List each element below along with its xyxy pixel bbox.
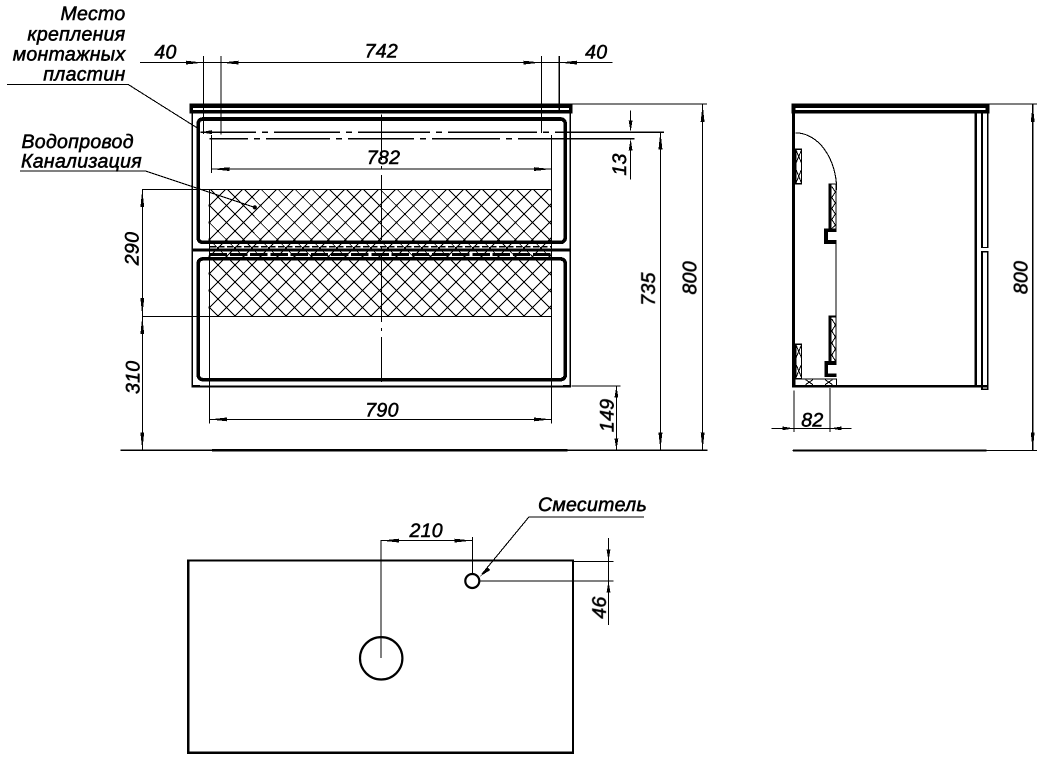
svg-text:Место: Место xyxy=(61,3,126,25)
svg-text:крепления: крепления xyxy=(27,23,125,45)
svg-text:800: 800 xyxy=(679,261,701,294)
svg-text:пластин: пластин xyxy=(43,64,125,86)
svg-text:790: 790 xyxy=(365,399,398,421)
svg-text:13: 13 xyxy=(609,153,631,175)
svg-text:монтажных: монтажных xyxy=(13,44,127,66)
svg-text:782: 782 xyxy=(367,147,400,169)
svg-text:742: 742 xyxy=(365,40,398,62)
svg-text:40: 40 xyxy=(154,41,176,63)
svg-text:290: 290 xyxy=(122,232,144,266)
svg-text:149: 149 xyxy=(596,399,618,432)
svg-text:82: 82 xyxy=(801,409,823,431)
svg-text:735: 735 xyxy=(638,272,660,305)
svg-text:800: 800 xyxy=(1010,261,1032,294)
svg-text:46: 46 xyxy=(589,596,611,618)
svg-text:Смеситель: Смеситель xyxy=(538,494,647,516)
svg-text:210: 210 xyxy=(408,520,442,542)
svg-text:310: 310 xyxy=(122,361,144,394)
svg-text:Канализация: Канализация xyxy=(21,151,142,173)
svg-text:40: 40 xyxy=(585,41,607,63)
